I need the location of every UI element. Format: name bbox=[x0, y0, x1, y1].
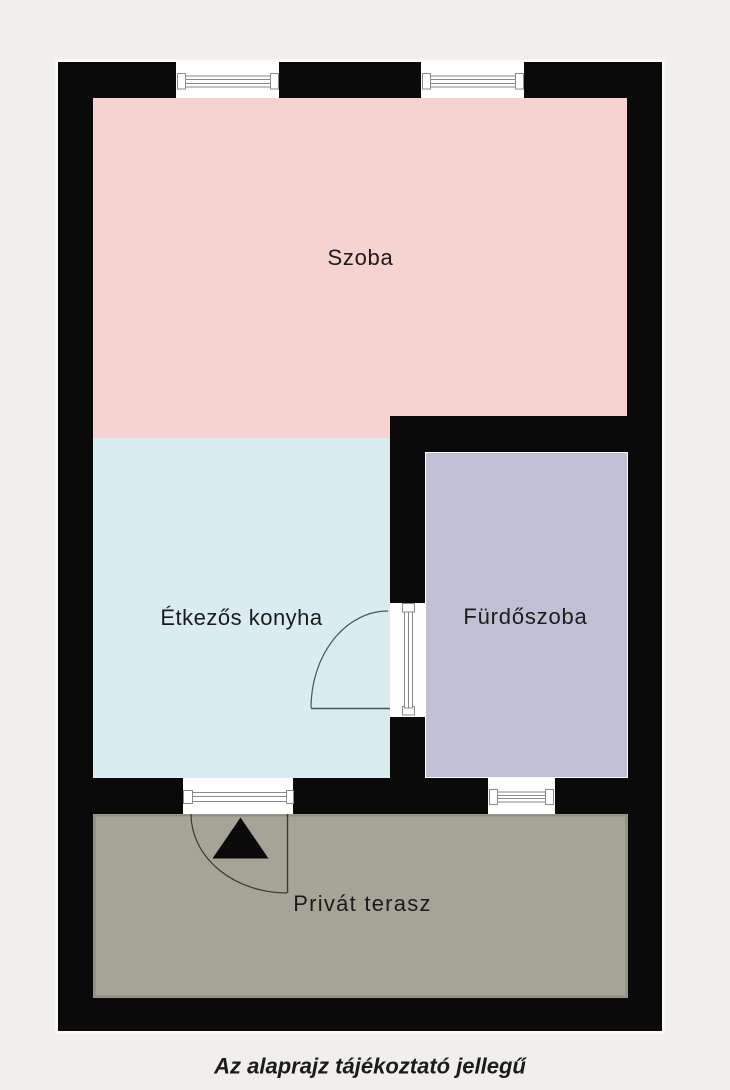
svg-text:Étkezős konyha: Étkezős konyha bbox=[160, 605, 323, 630]
svg-text:Az alaprajz tájékoztató jelleg: Az alaprajz tájékoztató jellegű bbox=[213, 1054, 527, 1079]
svg-text:Privát terasz: Privát terasz bbox=[293, 891, 432, 916]
svg-text:Fürdőszoba: Fürdőszoba bbox=[463, 604, 587, 629]
svg-text:Szoba: Szoba bbox=[328, 245, 394, 270]
